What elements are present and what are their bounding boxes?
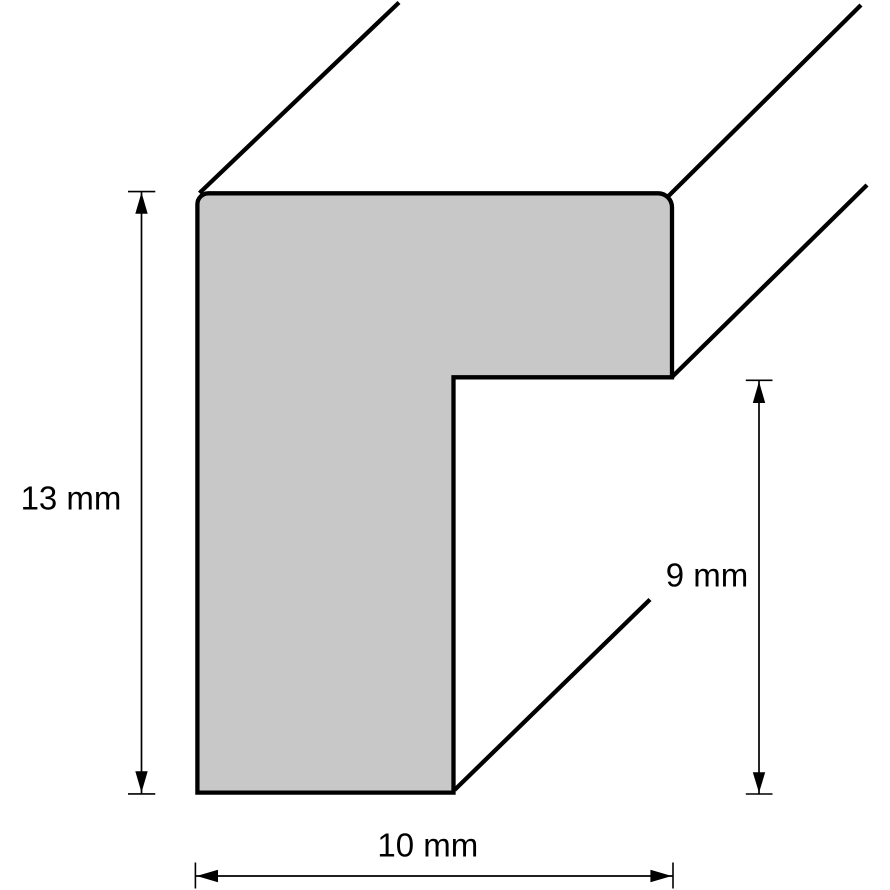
svg-text:10 mm: 10 mm [377, 827, 478, 864]
svg-text:13 mm: 13 mm [21, 480, 122, 517]
svg-text:9 mm: 9 mm [666, 557, 749, 594]
